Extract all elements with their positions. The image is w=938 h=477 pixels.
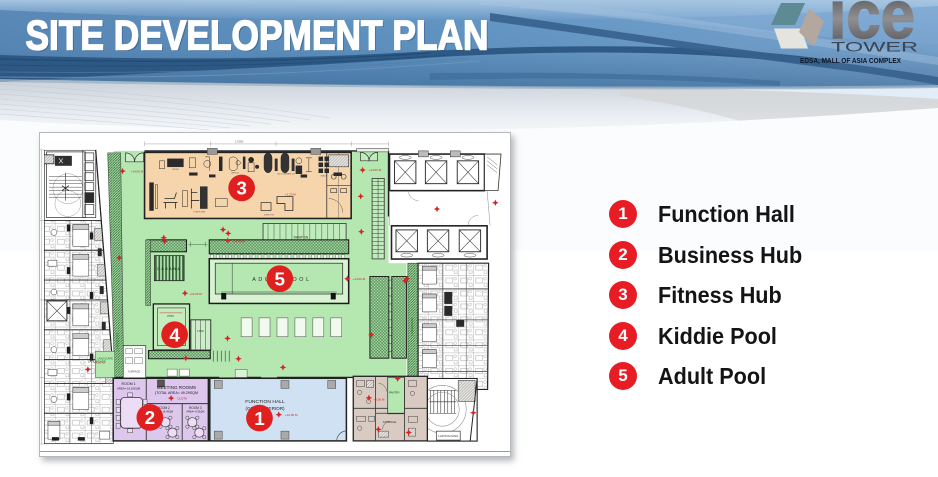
svg-text:17050: 17050 [235, 139, 244, 143]
svg-text:STRETCH: STRETCH [264, 214, 275, 216]
svg-text:LANDSCAPE: LANDSCAPE [116, 333, 120, 351]
svg-text:RAMP DN: RAMP DN [294, 235, 309, 239]
svg-text:LANDSCAPE: LANDSCAPE [410, 318, 414, 336]
svg-text:+14.00 M: +14.00 M [232, 239, 245, 243]
svg-text:FUNCTION HALL: FUNCTION HALL [245, 399, 285, 405]
svg-text:CLDTK: CLDTK [177, 396, 187, 400]
svg-text:TRDML: TRDML [172, 169, 180, 171]
svg-text:EDSA, MALL OF ASIA COMPLEX: EDSA, MALL OF ASIA COMPLEX [800, 56, 901, 65]
svg-text:2: 2 [145, 408, 156, 429]
svg-text:CABANA: CABANA [157, 267, 181, 271]
svg-text:3: 3 [236, 179, 247, 200]
svg-text:AREA= 16.26SQM: AREA= 16.26SQM [117, 386, 141, 390]
svg-text:+14.00 M: +14.00 M [131, 170, 144, 174]
svg-text:PANTRY: PANTRY [389, 390, 400, 394]
svg-text:SITE DEVELOPMENT PLAN: SITE DEVELOPMENT PLAN [26, 12, 489, 59]
svg-text:5: 5 [275, 269, 286, 290]
svg-text:LAP/JOGGING: LAP/JOGGING [438, 434, 459, 438]
svg-text:TOWER: TOWER [831, 39, 918, 55]
svg-text:MEETING ROOMS: MEETING ROOMS [157, 385, 196, 390]
svg-text:+4.00 M: +4.00 M [94, 361, 105, 365]
svg-text:SURFACE: SURFACE [128, 370, 140, 374]
svg-text:STORAGE: STORAGE [383, 420, 397, 424]
svg-text:1750: 1750 [197, 329, 204, 333]
svg-text:MD DUMBBELLS: MD DUMBBELLS [277, 174, 295, 176]
svg-text:+14.00 M: +14.00 M [369, 168, 382, 172]
svg-text:+5.00 M: +5.00 M [374, 397, 385, 401]
svg-text:PLATFORM: PLATFORM [193, 211, 205, 214]
svg-text:+14.00 M: +14.00 M [353, 277, 366, 281]
svg-text:+14.00 M: +14.00 M [189, 292, 202, 296]
svg-text:+12.00 M: +12.00 M [285, 413, 298, 417]
svg-text:RACK: RACK [321, 175, 328, 178]
svg-text:AREA= 9.3SQM: AREA= 9.3SQM [186, 410, 204, 413]
svg-text:2750: 2750 [167, 314, 174, 318]
svg-text:(TOTAL AREA= 49.29SQM: (TOTAL AREA= 49.29SQM [155, 391, 198, 395]
svg-text:+1.20 M: +1.20 M [285, 193, 296, 197]
svg-text:4: 4 [169, 325, 180, 346]
svg-text:ROOM 3: ROOM 3 [189, 406, 202, 410]
svg-text:BENCH: BENCH [231, 173, 239, 175]
svg-text:1: 1 [254, 409, 265, 430]
